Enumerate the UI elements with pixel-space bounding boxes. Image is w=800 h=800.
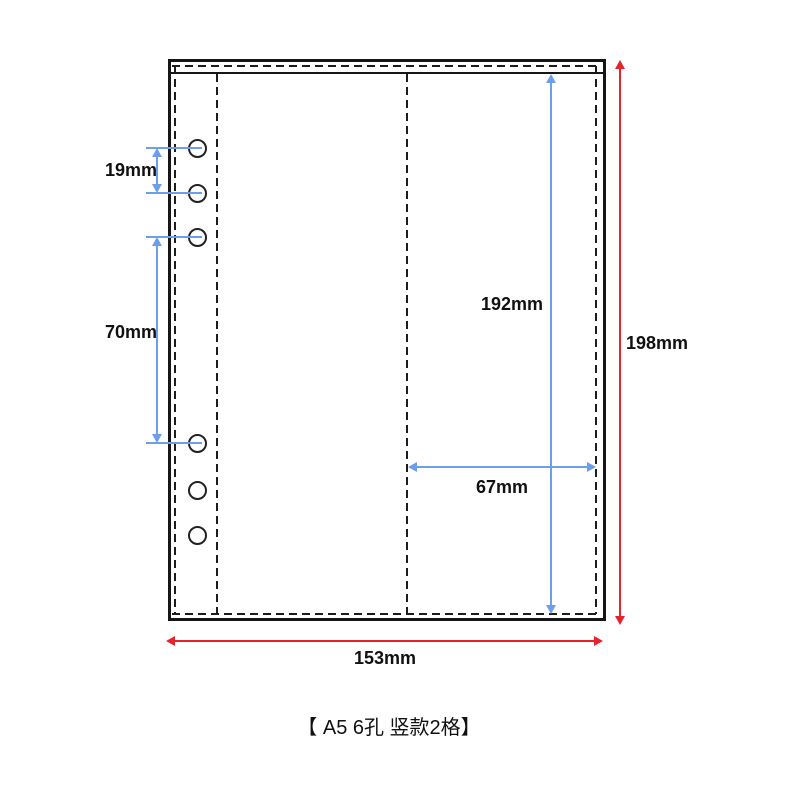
pocket-opening-edge	[171, 72, 603, 74]
product-caption: 【 A5 6孔 竖款2格】	[297, 711, 480, 740]
hole-spacing-label: 19mm	[105, 161, 157, 179]
arrow-down-icon	[152, 434, 162, 443]
arrow-down-icon	[546, 605, 556, 614]
total-height-label: 198mm	[626, 334, 688, 352]
stitch-line-top	[172, 65, 600, 67]
product-dimension-diagram: 19mm 70mm 192mm 67mm 198mm 153mm 【 A5 6孔…	[0, 0, 800, 800]
arrow-right-icon	[587, 462, 596, 472]
stitch-line-bottom	[172, 613, 600, 615]
dim-arrow-inner-height	[546, 74, 556, 614]
arrow-down-icon	[615, 616, 625, 625]
dim-arrow-total-width	[166, 636, 603, 646]
column-divider-seam	[406, 74, 408, 614]
binder-hole-5	[188, 481, 207, 500]
dim-arrow-total-height	[615, 60, 625, 625]
inner-height-label: 192mm	[481, 295, 543, 313]
stitch-line-right	[595, 66, 597, 614]
hole-strip-seam	[216, 74, 218, 614]
arrow-down-icon	[152, 184, 162, 193]
arrow-right-icon	[594, 636, 603, 646]
sheet-outline	[168, 59, 606, 621]
hole-section-gap-label: 70mm	[105, 323, 157, 341]
dim-arrow-right-pocket-width	[408, 462, 596, 472]
total-width-label: 153mm	[354, 649, 416, 667]
binder-hole-6	[188, 526, 207, 545]
right-pocket-width-label: 67mm	[476, 478, 528, 496]
